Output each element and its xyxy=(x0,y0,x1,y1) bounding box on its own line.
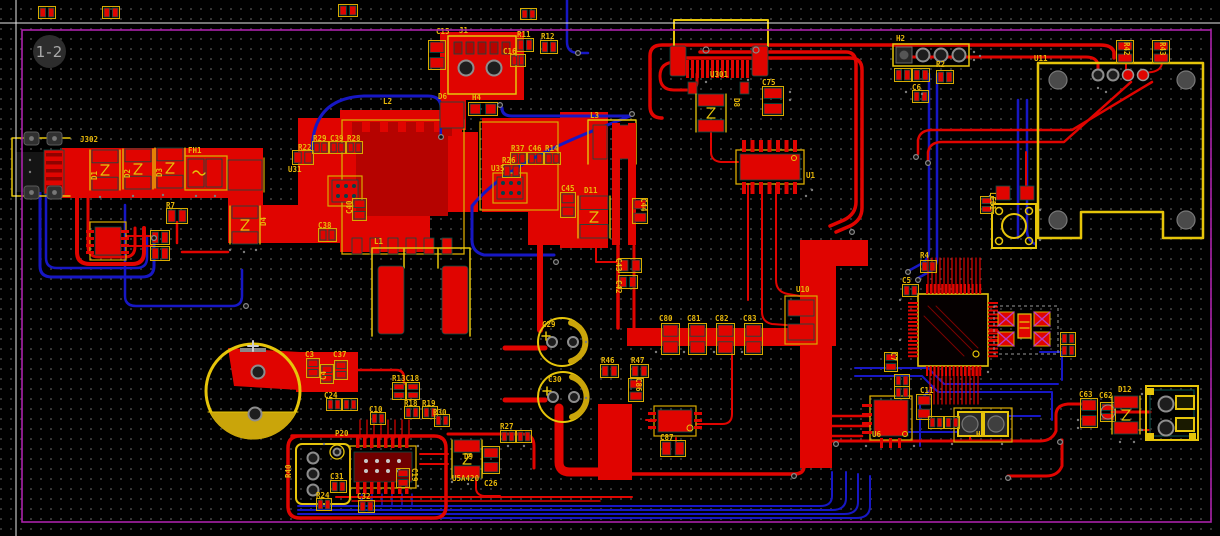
ref-label: R28 xyxy=(347,134,361,143)
ref-label: L2 xyxy=(383,97,392,106)
ref-label: C42 xyxy=(614,280,623,294)
ref-label: LED1 xyxy=(988,192,997,211)
ref-label: C19 xyxy=(410,468,419,482)
resistor-h4[interactable] xyxy=(469,103,498,116)
ref-label: C4 xyxy=(319,370,328,380)
ref-label: C45 xyxy=(561,184,575,193)
pcb-layout[interactable]: J302D1D2D3FH1D4R7R22R29C39R28U31L2L1C40C… xyxy=(0,0,1220,536)
ref-label: D6 xyxy=(438,92,448,101)
ref-label: R19 xyxy=(422,399,436,408)
ref-label: C75 xyxy=(762,78,776,87)
header-h2[interactable] xyxy=(893,44,969,66)
ref-label: C3 xyxy=(305,350,315,359)
ref-label: D9 xyxy=(464,452,474,461)
module-u11[interactable] xyxy=(1038,63,1203,238)
ref-label: R13C18 xyxy=(392,374,420,383)
ref-label: C29 xyxy=(542,320,556,329)
ref-label: C16 xyxy=(503,47,517,56)
ref-label: U11 xyxy=(1034,54,1048,63)
ref-label: C80 xyxy=(659,314,673,323)
ref-label: C31 xyxy=(330,472,344,481)
ref-label: D4 xyxy=(259,216,268,226)
ref-label: R11 xyxy=(517,30,531,39)
ref-label: U31 xyxy=(288,165,302,174)
ref-label: C37 xyxy=(333,350,347,359)
ref-label: C43 xyxy=(614,258,623,272)
ref-label: C39 xyxy=(330,134,344,143)
ref-label: U301 xyxy=(710,70,729,79)
ref-label: C82 xyxy=(715,314,729,323)
ref-label: C10 xyxy=(369,405,383,414)
ref-label: FH1 xyxy=(188,146,202,155)
ref-label: U10 xyxy=(796,285,810,294)
ref-label: R12 xyxy=(541,32,555,41)
capacitor-c63[interactable] xyxy=(1081,399,1098,428)
ref-label: C86 xyxy=(634,378,643,392)
ref-label: R4 xyxy=(920,251,930,260)
ref-label: R30 xyxy=(433,408,447,417)
ref-label: U35 xyxy=(491,164,505,173)
diode-d8[interactable] xyxy=(696,94,726,132)
qfp-mcu[interactable] xyxy=(908,284,998,376)
capacitor-c11[interactable] xyxy=(917,395,932,420)
ref-label: R47 xyxy=(631,356,645,365)
ref-label: H1 xyxy=(976,430,986,439)
ref-label: J302 xyxy=(80,135,98,144)
ref-label: C26 xyxy=(484,479,498,488)
ref-label: R43 xyxy=(1158,42,1167,56)
ref-label: C15 xyxy=(436,27,450,36)
ref-label: R42 xyxy=(1122,42,1131,56)
ref-label: C83 xyxy=(743,314,757,323)
ic-u6[interactable] xyxy=(862,396,912,448)
ref-label: C24 xyxy=(324,391,338,400)
ref-label: C11 xyxy=(920,386,934,395)
ref-label: R7 xyxy=(166,201,175,210)
ref-label: R46 xyxy=(601,356,615,365)
pcb-editor-canvas[interactable]: J302D1D2D3FH1D4R7R22R29C39R28U31L2L1C40C… xyxy=(0,0,1220,536)
ref-label: C40 xyxy=(345,200,354,214)
ref-label: U6 xyxy=(872,430,882,439)
ref-label: D3 xyxy=(155,167,164,177)
ref-label: C38 xyxy=(318,221,332,230)
connector-j2[interactable] xyxy=(1146,386,1198,440)
ref-label: C7 xyxy=(889,352,898,361)
page-indicator-badge: 1-2 xyxy=(33,35,66,68)
ref-label: D11 xyxy=(584,186,598,195)
crystal-keepout[interactable] xyxy=(994,306,1058,354)
ref-label: U5A420 xyxy=(452,474,480,483)
filter-block[interactable] xyxy=(228,158,264,192)
usb-connector-j302[interactable] xyxy=(12,132,70,199)
page-indicator-text: 1-2 xyxy=(36,43,64,61)
ref-label: C44 xyxy=(639,198,648,212)
ref-label: H2 xyxy=(896,34,905,43)
ref-label: D8 xyxy=(732,98,741,108)
diode-d6[interactable] xyxy=(440,102,464,128)
ref-label: D2 xyxy=(123,169,132,178)
ref-label: C5 xyxy=(902,276,911,285)
ref-label: L1 xyxy=(374,237,384,246)
ref-label: L3 xyxy=(590,111,600,120)
ref-label: R29 xyxy=(313,134,327,143)
ref-label: D1 xyxy=(90,170,99,180)
ref-label: C81 xyxy=(687,314,701,323)
ref-label: R14 xyxy=(545,144,559,153)
ref-label: R40 xyxy=(284,464,293,478)
ref-label: R24 xyxy=(316,491,330,500)
ref-label: R18 xyxy=(404,399,418,408)
ref-label: C6 xyxy=(912,83,922,92)
diode-d12[interactable] xyxy=(1112,396,1140,434)
fuse-fh1[interactable] xyxy=(185,156,227,190)
soic14-ic-u1[interactable] xyxy=(736,140,804,194)
ref-label: C46 xyxy=(528,144,542,153)
ref-label: U1 xyxy=(806,171,816,180)
inductor-l1[interactable] xyxy=(372,248,470,336)
ref-label: C62 xyxy=(1099,391,1113,400)
ref-label: H4 xyxy=(472,93,482,102)
ref-label: C87 xyxy=(660,433,674,442)
ref-label: C32 xyxy=(357,492,371,501)
ref-label: D12 xyxy=(1118,385,1132,394)
ref-label: P20 xyxy=(335,429,349,438)
capacitor-c75[interactable] xyxy=(763,87,784,116)
ref-label: R37 xyxy=(511,144,525,153)
ref-label: C63 xyxy=(1079,390,1093,399)
ref-label: R2 xyxy=(936,60,945,69)
ref-label: R27 xyxy=(500,422,514,431)
ref-label: R22 xyxy=(298,143,312,152)
ic-u8[interactable] xyxy=(648,406,702,436)
ref-label: C30 xyxy=(548,375,562,384)
